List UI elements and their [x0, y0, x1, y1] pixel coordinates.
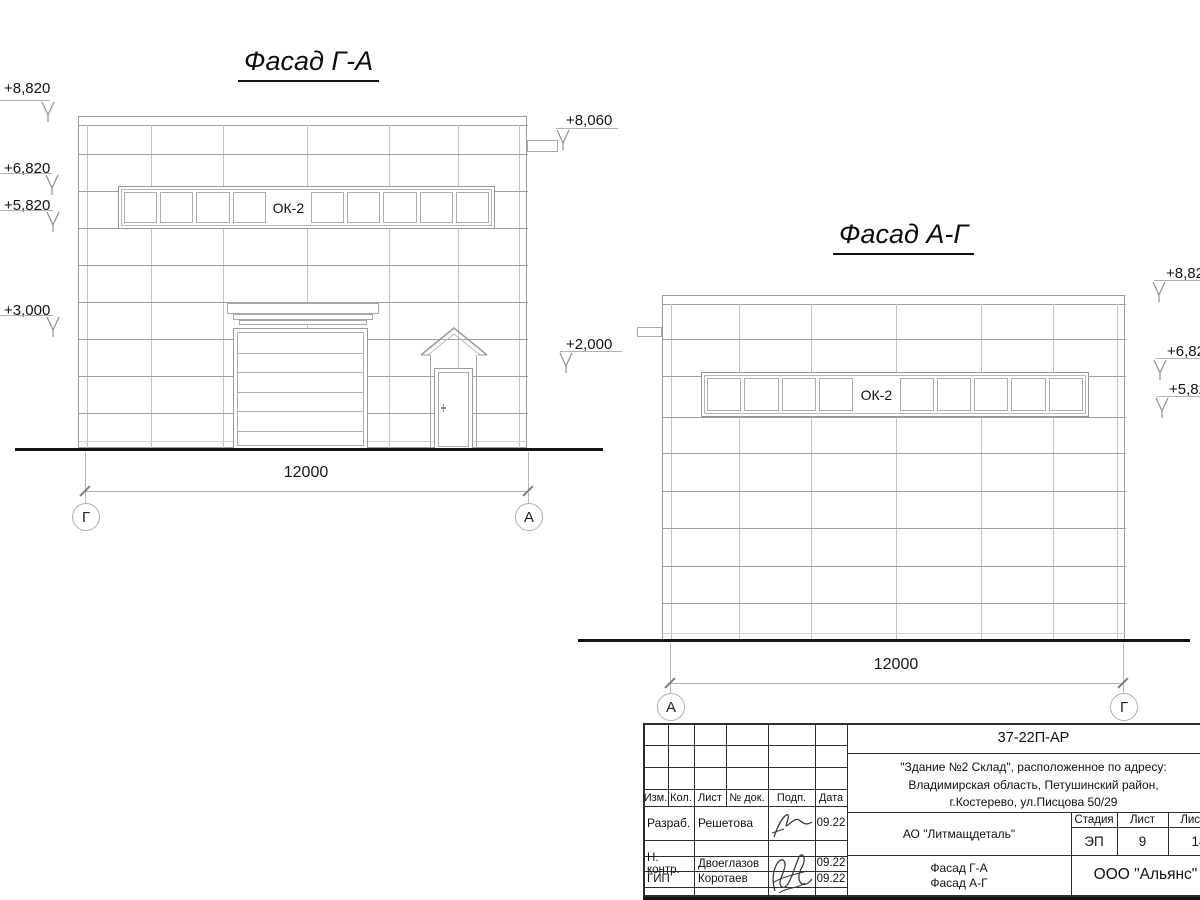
stamp-stage-value: ЭП	[1071, 827, 1117, 855]
extension-line	[670, 643, 671, 693]
stamp-grid-line	[643, 767, 847, 768]
elevation-arrow-icon	[1151, 359, 1169, 381]
window-pane	[311, 192, 344, 223]
stamp-name-gip: Коротаев	[694, 871, 768, 887]
elevation-arrow-icon	[557, 352, 575, 374]
window-band-frame: ОК-2	[121, 189, 492, 226]
panel-mullion-line	[389, 125, 390, 449]
window-pane	[744, 378, 778, 411]
facade-ga-title: Фасад Г-А	[238, 46, 379, 82]
facade-ga-elevation: ОК-2	[78, 116, 527, 448]
axis-bubble-g: Г	[72, 503, 100, 531]
stamp-name-developer: Решетова	[694, 806, 768, 840]
dimension-line	[670, 683, 1123, 684]
stamp-total-value: 14	[1168, 827, 1200, 855]
stamp-col-data: Дата	[815, 789, 847, 806]
elevation-arrow-icon	[1153, 397, 1171, 419]
window-band: ОК-2	[701, 372, 1089, 417]
panel-joint-line	[79, 154, 528, 155]
elevation-label: +8,820	[4, 80, 50, 97]
stamp-col-izm: Изм.	[643, 789, 668, 806]
elevation-arrow-icon	[554, 129, 572, 151]
axis-letter: Г	[1120, 699, 1128, 716]
porch-post	[476, 355, 477, 449]
elevation-arrow-icon	[39, 101, 57, 123]
window-pane	[420, 192, 453, 223]
gate-canopy-edge	[239, 320, 367, 325]
axis-letter: Г	[82, 509, 90, 526]
axis-bubble-g: Г	[1110, 693, 1138, 721]
parapet-joint-line	[663, 304, 1126, 305]
ground-line	[15, 448, 603, 451]
window-band-label: ОК-2	[856, 378, 896, 411]
window-pane	[819, 378, 853, 411]
stamp-project-address: "Здание №2 Склад", расположенное по адре…	[847, 759, 1200, 812]
stamp-doc-number: 37-22П-АР	[847, 723, 1200, 753]
stamp-sheet-value: 9	[1117, 827, 1168, 855]
corner-trim-line	[671, 304, 672, 641]
entry-porch-gable	[419, 323, 489, 359]
stamp-date-checker: 09.22	[815, 854, 847, 871]
corner-trim-line	[519, 125, 520, 449]
stamp-total-header: Листов	[1168, 812, 1200, 827]
corner-trim-line	[87, 125, 88, 449]
panel-mullion-line	[223, 125, 224, 449]
project-address-line1: "Здание №2 Склад", расположенное по адре…	[847, 759, 1200, 777]
signature-developer	[770, 809, 814, 841]
gate-panel-line	[238, 372, 363, 373]
gate-panel-line	[238, 411, 363, 412]
stamp-grid-line	[643, 745, 847, 746]
panel-joint-line	[79, 265, 528, 266]
panel-mullion-line	[151, 125, 152, 449]
panel-mullion-line	[1053, 304, 1054, 641]
garage-gate-frame	[233, 328, 368, 449]
elevation-arrow-icon	[1150, 281, 1168, 303]
window-pane	[1011, 378, 1045, 411]
gate-canopy-slab	[227, 303, 379, 314]
signature-checker-gip	[767, 849, 815, 895]
panel-joint-line	[663, 453, 1126, 454]
axis-letter: А	[524, 509, 534, 526]
window-pane	[233, 192, 266, 223]
facade-ag-title: Фасад А-Г	[833, 219, 974, 255]
facade-ag-elevation: ОК-2	[662, 295, 1125, 640]
window-pane	[347, 192, 380, 223]
plinth-line	[663, 633, 1126, 634]
drawing-sheet: Фасад Г-А ОК-2	[0, 0, 1200, 900]
stamp-role-checker: Н. контр.	[643, 856, 694, 871]
porch-post	[430, 355, 431, 449]
window-pane	[937, 378, 971, 411]
stamp-col-list: Лист	[694, 789, 726, 806]
stamp-grid-line	[643, 887, 847, 888]
panel-joint-line	[663, 339, 1126, 340]
panel-mullion-line	[896, 304, 897, 641]
window-pane	[196, 192, 229, 223]
stamp-date-gip: 09.22	[815, 870, 847, 887]
stamp-role-developer: Разраб.	[643, 806, 694, 840]
gate-panel-line	[238, 431, 363, 432]
stamp-col-kol: Кол.	[668, 789, 694, 806]
door-handle-stem	[443, 404, 444, 412]
panel-joint-line	[663, 491, 1126, 492]
project-address-line2: Владимирская область, Петушинский район,	[847, 777, 1200, 795]
panel-mullion-line	[739, 304, 740, 641]
dimension-line	[85, 491, 528, 492]
sheet-title-line1: Фасад Г-А	[847, 861, 1071, 876]
window-pane	[1049, 378, 1083, 411]
panel-joint-line	[663, 566, 1126, 567]
ground-line	[578, 639, 1190, 642]
panel-joint-line	[663, 417, 1126, 418]
window-pane	[974, 378, 1008, 411]
panel-mullion-line	[811, 304, 812, 641]
panel-joint-line	[663, 528, 1126, 529]
stamp-grid-line	[847, 753, 1200, 754]
parapet-joint-line	[79, 125, 528, 126]
panel-joint-line	[663, 603, 1126, 604]
entry-door-frame	[434, 368, 473, 449]
project-address-line3: г.Костерево, ул.Писцова 50/29	[847, 794, 1200, 812]
stamp-col-doc: № док.	[726, 789, 768, 806]
axis-bubble-a: А	[515, 503, 543, 531]
stamp-customer: АО "Литмащдеталь"	[847, 812, 1071, 855]
axis-letter: А	[666, 699, 676, 716]
window-pane	[707, 378, 741, 411]
window-pane	[124, 192, 157, 223]
elevation-label: +8,060	[566, 112, 612, 129]
garage-gate-leaf	[237, 332, 364, 446]
stamp-date-developer: 09.22	[815, 806, 847, 840]
stamp-stage-header: Стадия	[1071, 812, 1117, 827]
stamp-grid-line	[643, 840, 847, 841]
entry-door-leaf	[438, 372, 469, 447]
stamp-col-podp: Подп.	[768, 789, 815, 806]
elevation-arrow-icon	[44, 211, 62, 233]
window-pane	[900, 378, 934, 411]
extension-line	[85, 452, 86, 503]
stamp-name-checker: Двоеглазов	[694, 856, 768, 871]
panel-mullion-line	[981, 304, 982, 641]
window-pane	[456, 192, 489, 223]
stamp-sheet-title: Фасад Г-А Фасад А-Г	[847, 855, 1071, 895]
extension-line	[528, 452, 529, 503]
sheet-title-line2: Фасад А-Г	[847, 876, 1071, 891]
stamp-sheet-header: Лист	[1117, 812, 1168, 827]
window-pane	[383, 192, 416, 223]
gate-panel-line	[238, 353, 363, 354]
window-band: ОК-2	[118, 186, 495, 229]
dimension-text: 12000	[266, 464, 346, 482]
corner-trim-line	[1117, 304, 1118, 641]
stamp-role-gip: ГИП	[643, 871, 694, 887]
axis-bubble-a: А	[657, 693, 685, 721]
elevation-arrow-icon	[43, 174, 61, 196]
window-pane	[160, 192, 193, 223]
window-band-label: ОК-2	[269, 192, 308, 223]
stamp-organization: ООО "Альянс"	[1071, 855, 1200, 895]
window-pane	[782, 378, 816, 411]
dimension-text: 12000	[856, 656, 936, 674]
window-band-frame: ОК-2	[704, 375, 1086, 414]
gutter-outlet	[637, 327, 662, 337]
elevation-arrow-icon	[44, 316, 62, 338]
titleblock: Изм. Кол. Лист № док. Подп. Дата Разраб.…	[643, 723, 1200, 897]
extension-line	[1123, 643, 1124, 693]
gate-panel-line	[238, 392, 363, 393]
